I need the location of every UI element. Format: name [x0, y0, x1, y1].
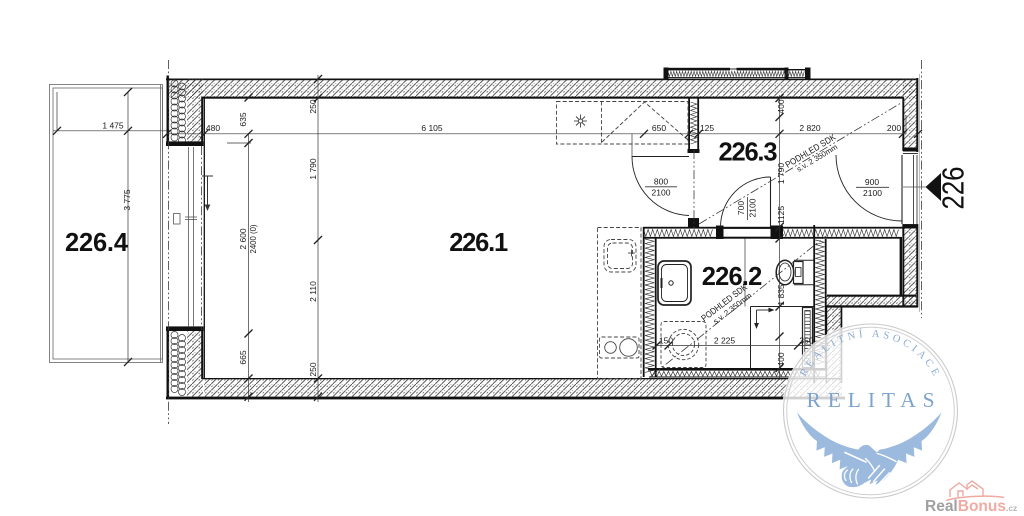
svg-text:400: 400 [776, 99, 786, 113]
svg-text:6 105: 6 105 [421, 123, 443, 133]
svg-text:800: 800 [654, 177, 668, 187]
svg-text:226.4: 226.4 [65, 229, 129, 257]
svg-text:150: 150 [659, 335, 673, 345]
svg-text:350: 350 [799, 335, 813, 345]
svg-text:1 475: 1 475 [102, 121, 124, 131]
svg-text:2100: 2100 [748, 198, 758, 217]
svg-text:2100: 2100 [652, 188, 671, 198]
svg-text:1 790: 1 790 [308, 158, 318, 180]
svg-text:RealBonus.cz: RealBonus.cz [925, 498, 1017, 515]
svg-text:2100: 2100 [863, 188, 882, 198]
svg-text:2 600: 2 600 [238, 228, 248, 250]
svg-text:226.3: 226.3 [719, 139, 778, 167]
svg-text:RELITAS: RELITAS [807, 388, 942, 412]
svg-text:2400 (0): 2400 (0) [249, 224, 258, 253]
svg-text:665: 665 [238, 350, 248, 364]
svg-text:900: 900 [865, 177, 879, 187]
svg-text:480: 480 [206, 123, 220, 133]
svg-text:650: 650 [652, 123, 666, 133]
svg-text:125: 125 [700, 123, 714, 133]
svg-text:1 835: 1 835 [776, 284, 786, 306]
svg-text:250: 250 [308, 99, 318, 113]
svg-text:226: 226 [936, 167, 971, 210]
svg-text:250: 250 [308, 362, 318, 376]
svg-text:226.2: 226.2 [702, 263, 763, 291]
svg-text:2 820: 2 820 [799, 123, 821, 133]
svg-text:1125: 1125 [776, 206, 786, 225]
svg-text:3 775: 3 775 [122, 189, 132, 211]
svg-text:2 225: 2 225 [714, 335, 736, 345]
svg-text:2 110: 2 110 [308, 281, 318, 302]
svg-text:200: 200 [887, 123, 901, 133]
svg-text:400: 400 [776, 352, 786, 366]
svg-text:700: 700 [736, 201, 746, 215]
svg-text:226.1: 226.1 [449, 229, 508, 257]
svg-text:635: 635 [238, 112, 248, 126]
